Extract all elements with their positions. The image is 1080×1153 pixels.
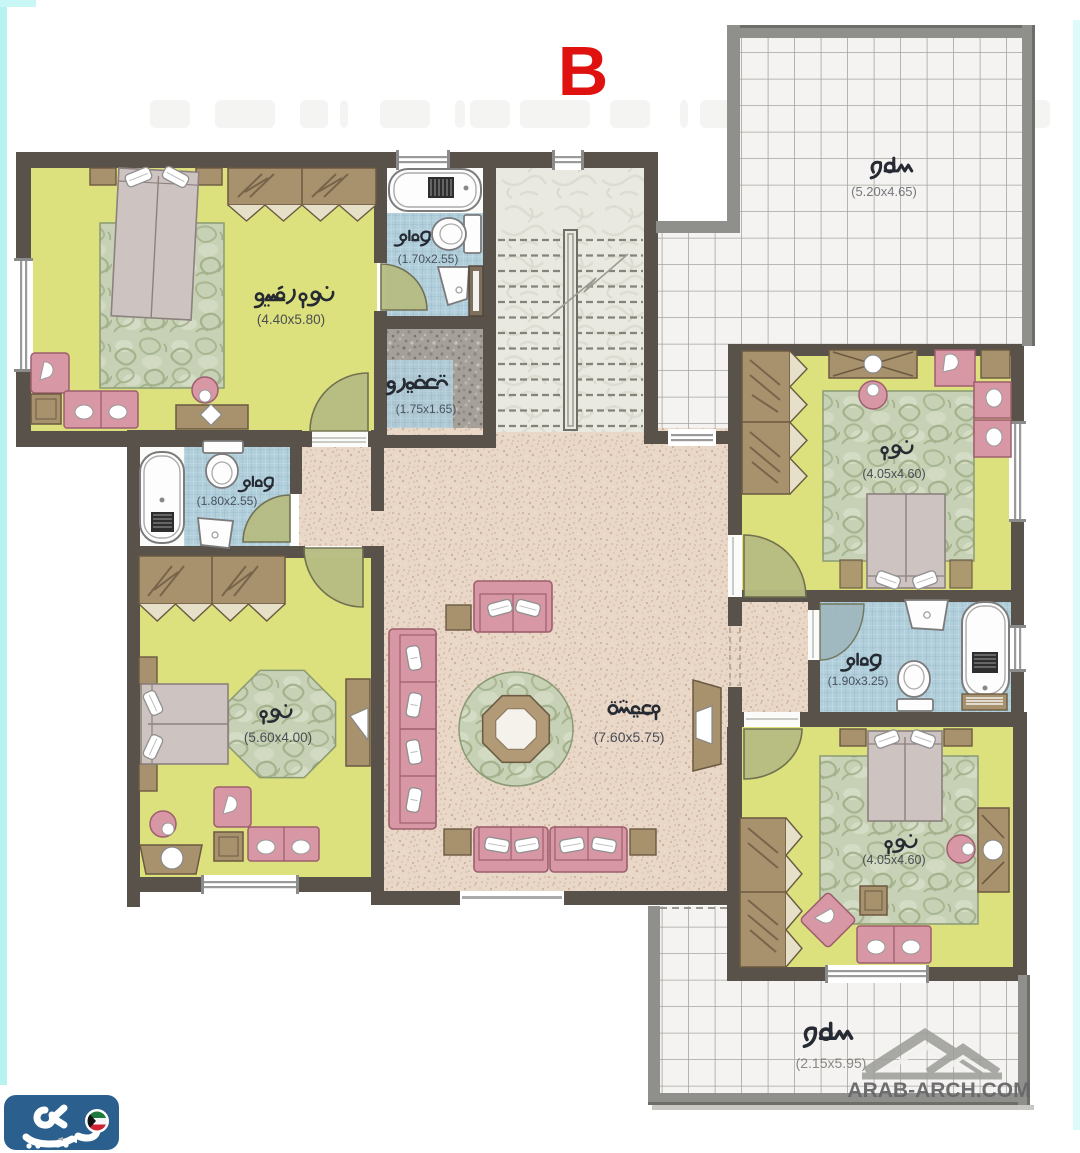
svg-text:(4.05x4.60): (4.05x4.60)	[862, 467, 925, 481]
svg-text:(1.70x2.55): (1.70x2.55)	[398, 252, 459, 266]
svg-text:(5.20x4.65): (5.20x4.65)	[851, 184, 917, 199]
svg-text:ARAB-ARCH.COM: ARAB-ARCH.COM	[847, 1079, 1030, 1102]
svg-text:(5.60x4.00): (5.60x4.00)	[244, 730, 312, 745]
svg-text:(7.60x5.75): (7.60x5.75)	[594, 729, 665, 745]
svg-text:(1.75x1.65): (1.75x1.65)	[396, 402, 457, 416]
svg-text:(1.80x2.55): (1.80x2.55)	[197, 494, 258, 508]
svg-text:B: B	[558, 32, 609, 110]
svg-text:(1.90x3.25): (1.90x3.25)	[828, 674, 889, 688]
svg-text:(2.15x5.95): (2.15x5.95)	[796, 1055, 867, 1071]
svg-text:(4.40x5.80): (4.40x5.80)	[257, 312, 325, 327]
svg-text:(4.05x4.60): (4.05x4.60)	[862, 853, 925, 867]
